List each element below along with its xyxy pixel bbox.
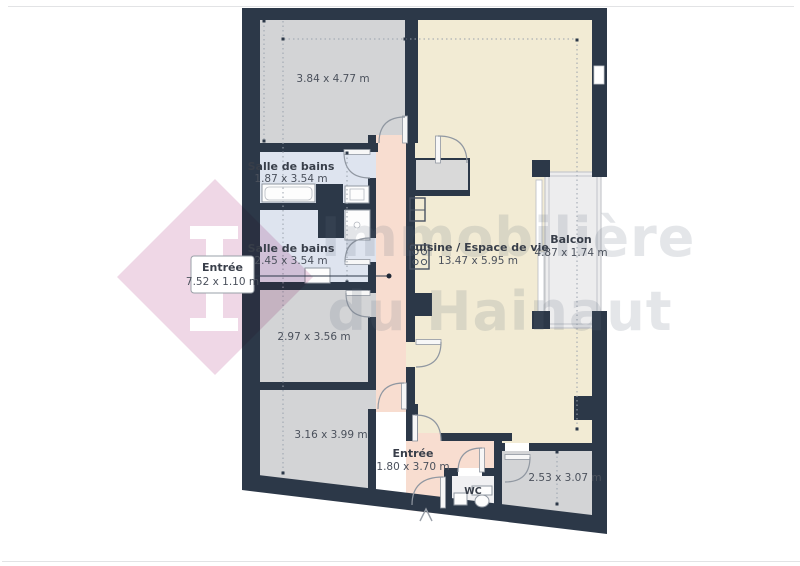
floorplan-page: Immobilière du Hainaut Entrée 7.52 x 1.1… bbox=[0, 0, 800, 566]
room297-dims: 2.97 x 3.56 m bbox=[277, 331, 350, 343]
wall-right-upper bbox=[592, 8, 607, 177]
bathroom2-dims: 2.45 x 3.54 m bbox=[254, 255, 327, 267]
callout-dot bbox=[387, 274, 392, 279]
wall-pillar bbox=[574, 396, 592, 420]
floorplan-drawing: Immobilière du Hainaut Entrée 7.52 x 1.1… bbox=[0, 0, 800, 566]
bathroom2-name: Salle de bains bbox=[248, 242, 335, 255]
corridor-floor bbox=[376, 135, 406, 412]
door-room253-leaf bbox=[505, 455, 530, 460]
bedroom1-dims: 3.84 x 4.77 m bbox=[296, 73, 369, 85]
door-wc-leaf bbox=[480, 448, 485, 472]
balcony-name: Balcon bbox=[550, 233, 592, 246]
door-room316-leaf bbox=[402, 383, 407, 409]
bathroom1-dims: 1.87 x 3.54 m bbox=[254, 173, 327, 185]
callout-room-dims: 7.52 x 1.10 m bbox=[186, 276, 259, 288]
door-bedroom1-leaf bbox=[403, 116, 408, 143]
bathroom1-name: Salle de bains bbox=[248, 160, 335, 173]
frame-top-line bbox=[8, 6, 794, 7]
wall-hall-top-2 bbox=[441, 433, 512, 441]
kitchen-name: Cuisine / Espace de vie bbox=[407, 241, 549, 254]
wall-corridor-east-2 bbox=[406, 367, 415, 404]
wc-name: WC bbox=[464, 486, 481, 497]
kitchen-counter bbox=[416, 160, 468, 190]
watermark-line2: du Hainaut bbox=[327, 280, 672, 343]
door-kitchen-hall-leaf bbox=[413, 415, 418, 441]
wall-room297-room316 bbox=[260, 382, 376, 390]
door-kitchen-top-leaf bbox=[436, 136, 441, 163]
room253-dims: 2.53 x 3.07 m bbox=[528, 472, 601, 484]
wall-corridor-west-5 bbox=[368, 409, 376, 490]
callout-room-name: Entrée bbox=[202, 261, 243, 274]
room316-dims: 3.16 x 3.99 m bbox=[294, 429, 367, 441]
wall-room253-top-2 bbox=[529, 443, 592, 451]
front-door-leaf bbox=[441, 477, 446, 508]
wall-top bbox=[242, 8, 607, 20]
wall-hall-room253 bbox=[494, 441, 502, 515]
bathroom1-vanity bbox=[345, 186, 369, 203]
balcony-dims: 4.87 x 1.74 m bbox=[534, 247, 607, 259]
window-right-wall bbox=[594, 66, 604, 84]
wall-right-lower bbox=[592, 311, 607, 532]
balcony-stub-top bbox=[532, 160, 550, 177]
frame-bottom-line bbox=[2, 561, 800, 562]
bathroom1-block bbox=[316, 184, 343, 203]
wall-room253-top-1 bbox=[502, 443, 505, 451]
kitchen-dims: 13.47 x 5.95 m bbox=[438, 255, 518, 267]
hall-name: Entrée bbox=[393, 447, 434, 460]
hall-dims: 1.80 x 3.70 m bbox=[376, 461, 449, 473]
